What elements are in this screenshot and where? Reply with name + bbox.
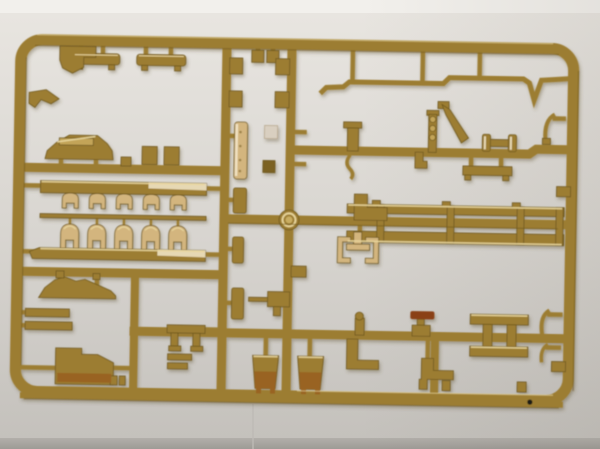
table-top	[167, 325, 205, 334]
clip-g	[291, 266, 306, 277]
fender-tab-2	[93, 273, 100, 279]
rod-bracket-leg	[273, 307, 280, 316]
table-foot-1	[169, 346, 181, 351]
rod-bracket-body	[267, 292, 289, 307]
vertical-strip-2	[233, 188, 246, 213]
muffler-b-nub-1	[142, 65, 148, 70]
chain-knob-2	[430, 125, 436, 131]
muffler-b-nub-2	[175, 66, 181, 71]
small-bar-under-table-2	[167, 363, 187, 369]
stowage-box-band	[57, 373, 111, 383]
small-bar-under-table-1	[168, 354, 192, 360]
small-part-on-runner	[121, 157, 131, 166]
chain-knob-3	[429, 134, 435, 140]
roller-axle	[488, 139, 510, 146]
top-pad-1	[252, 50, 264, 62]
roller-cap-1	[482, 134, 490, 151]
jaw-clamp-stem	[354, 232, 362, 244]
roller-cap-gloss-1	[484, 136, 486, 149]
roller-cap-gloss-2	[510, 137, 512, 150]
red-cap-stem	[417, 319, 424, 325]
bucket-1-foot-1	[256, 388, 261, 393]
red-cap-bracket-body	[412, 325, 430, 336]
vertical-strip-3	[231, 288, 244, 319]
chain-knob-1	[430, 116, 436, 122]
rail-tab-upper	[556, 187, 570, 197]
red-cap-part	[410, 311, 434, 319]
fender-tab-1	[56, 271, 64, 278]
h-frame-leg-2	[507, 325, 516, 347]
ladder-gate-2	[447, 206, 455, 244]
clip-f	[275, 92, 289, 108]
sprue-photo	[0, 0, 600, 449]
left-rail-bar-2	[25, 321, 72, 330]
knob-post	[355, 318, 364, 335]
photo-stage	[0, 0, 600, 449]
table-leg-2	[193, 333, 200, 346]
post-clamp-body	[347, 128, 358, 151]
rail-nub-2	[119, 376, 125, 385]
bucket-2-lower	[299, 372, 321, 389]
jaw-clamp-bar	[346, 244, 369, 250]
bucket-1-lower	[254, 371, 276, 388]
gray-pad	[264, 125, 277, 138]
runner-h-left-upper	[24, 167, 225, 171]
ladder-gate-4	[556, 208, 564, 246]
flat-bar-under-runner	[463, 166, 512, 176]
knob-post-head	[355, 312, 363, 320]
roller-cap-2	[508, 135, 516, 152]
rod-of-rod-bracket	[249, 297, 269, 301]
curve-hook-top-tab	[542, 138, 550, 144]
runner-h-left-lower	[22, 271, 223, 275]
bucket-2-foot-1	[301, 389, 306, 394]
clip-c	[230, 58, 243, 74]
rail-nub-4	[517, 382, 526, 392]
runner-v-right-lower	[434, 336, 435, 394]
clip-pair-upper-left-1	[142, 146, 157, 164]
glint-hframe-2	[471, 347, 527, 348]
rail-nub-3	[442, 381, 450, 391]
clip-d	[229, 91, 242, 107]
h-frame-leg-1	[483, 324, 492, 346]
clip-e	[276, 59, 290, 75]
flat-bar-tab-2	[503, 176, 509, 181]
bucket-1-foot-2	[270, 389, 275, 394]
table-leg-1	[171, 333, 178, 346]
glint-hframe-1	[471, 315, 527, 316]
table-foot-2	[191, 346, 203, 351]
rail-tab-lower	[551, 361, 565, 371]
ladder-gate-3	[517, 207, 525, 245]
dark-square-pad	[263, 160, 275, 172]
vertical-strip-4	[232, 237, 243, 263]
clip-pair-upper-left-2	[164, 147, 179, 165]
muffler-a-nub-2	[109, 65, 115, 70]
post-clamp-cap	[344, 122, 362, 128]
left-rail-bar-1	[25, 308, 69, 317]
flat-bar-tab-1	[465, 175, 471, 180]
bucket-2-foot-2	[315, 389, 320, 394]
